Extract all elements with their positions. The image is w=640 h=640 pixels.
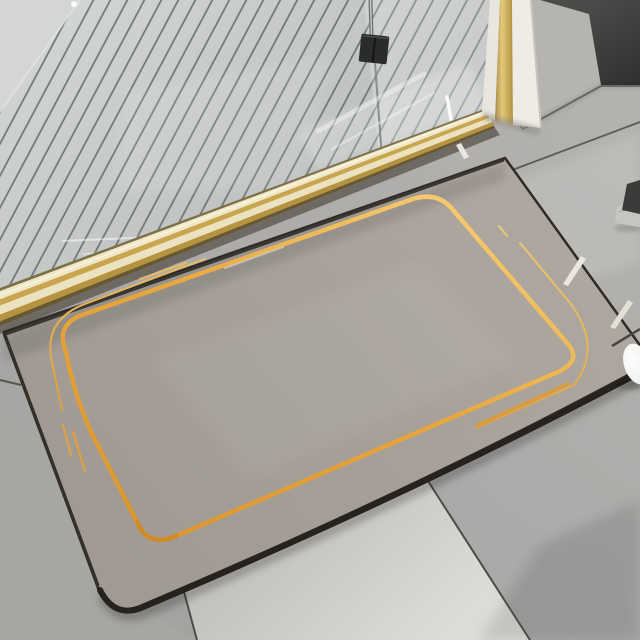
- photo-canvas: [0, 0, 640, 640]
- support-rod-highlight: [371, 0, 372, 35]
- bathroom-photo: [0, 0, 640, 640]
- glass-clamp: [359, 34, 390, 65]
- white-speck: [71, 1, 77, 7]
- door-frame: [482, 0, 541, 136]
